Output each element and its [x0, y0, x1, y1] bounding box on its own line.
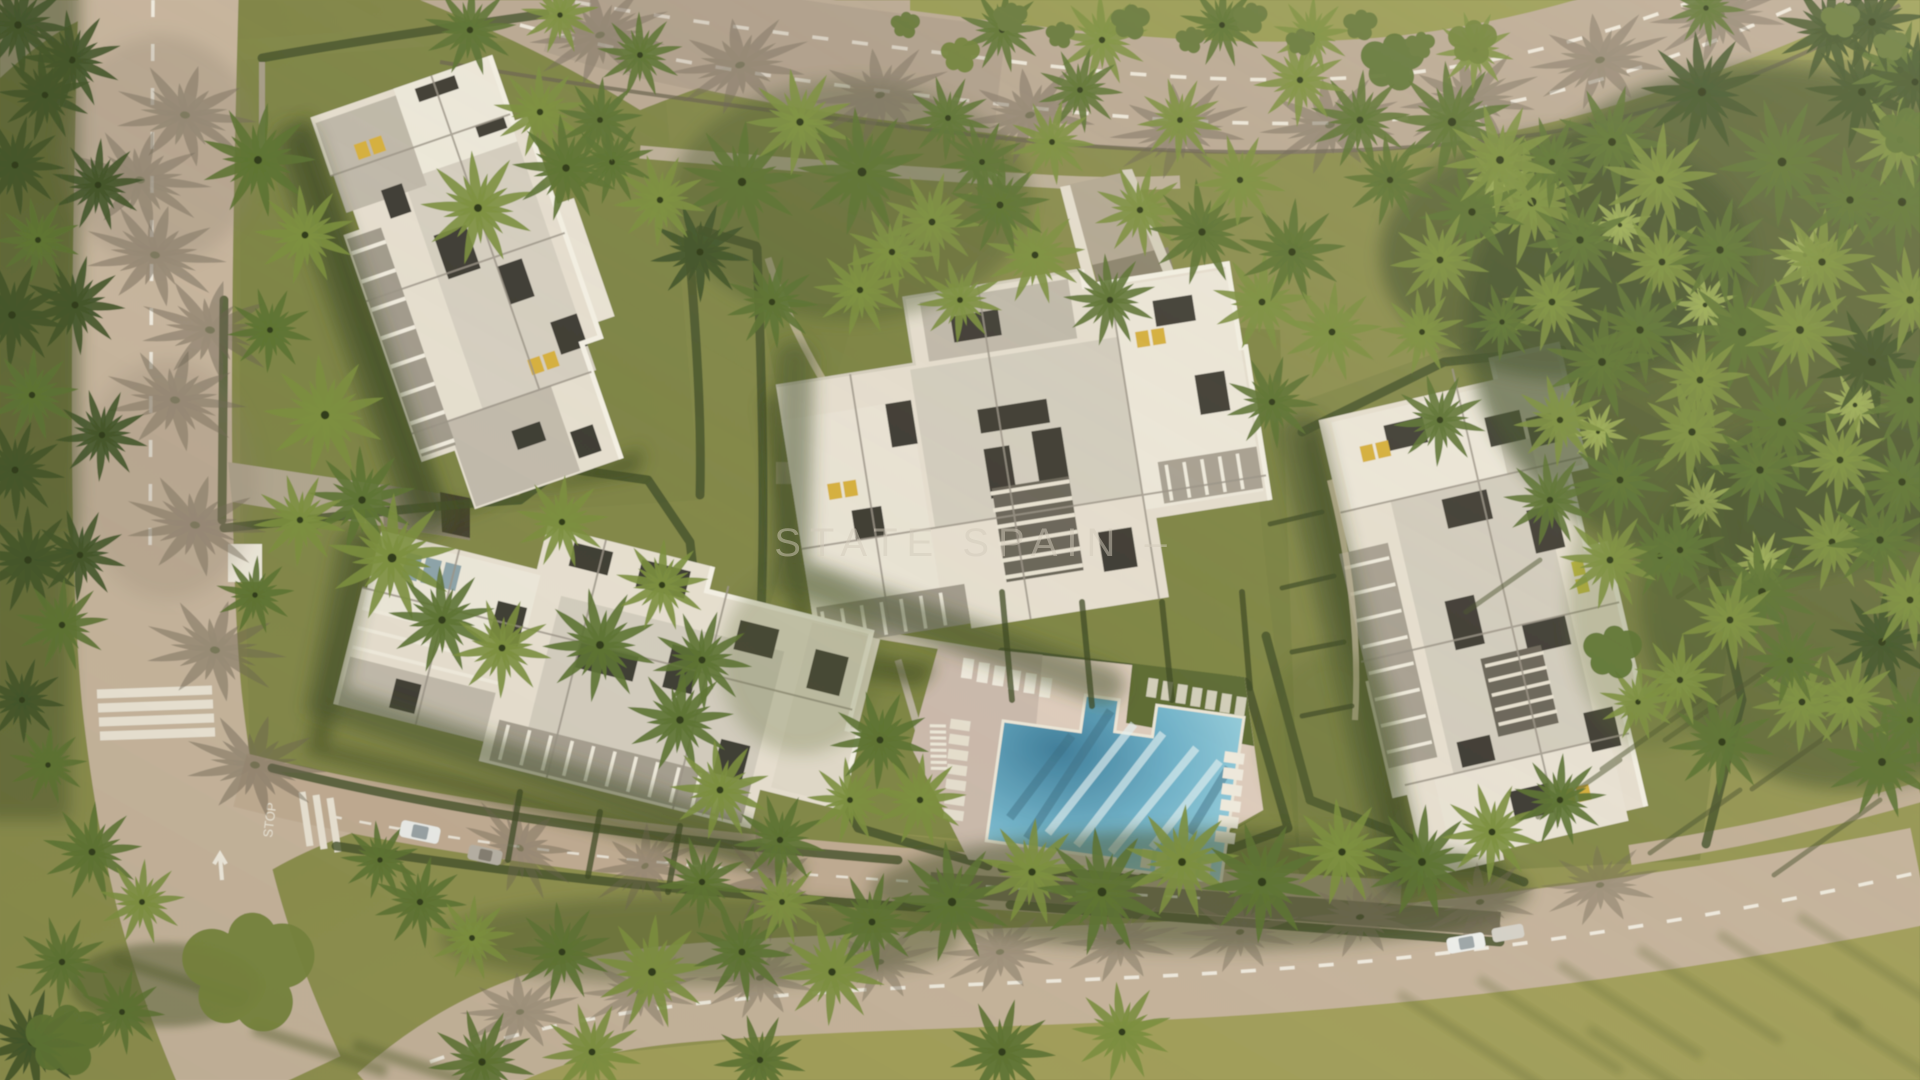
svg-text:STATE SPAIN –: STATE SPAIN – [774, 521, 1176, 565]
